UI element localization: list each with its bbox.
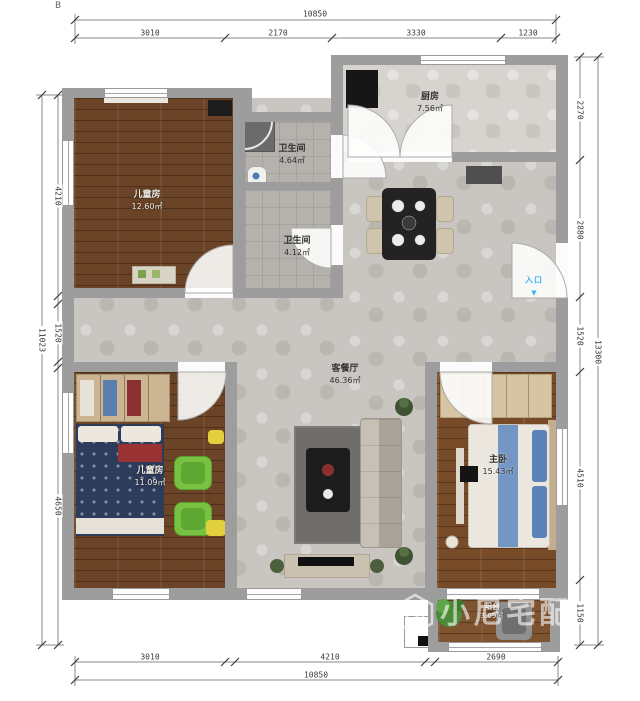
wall-kitchen-stub-right: [452, 152, 568, 162]
sideboard: [466, 166, 502, 184]
dim-right-seg-2: 1520: [576, 324, 585, 347]
bed-runner-blue: [498, 425, 518, 547]
watermark-text: 小尼宅配: [440, 599, 572, 629]
pillow-blue: [532, 486, 547, 538]
door-gap-kids-upper: [185, 288, 233, 298]
window-sill: [104, 98, 168, 103]
wall-kids-bath-divider: [233, 88, 245, 298]
room-name: 卫生间: [255, 236, 339, 248]
window-kids-upper: [104, 88, 168, 98]
room-name: 主卧: [456, 455, 540, 467]
dim-top-seg-0: 3010: [138, 29, 161, 38]
dim-bottom-seg-1: 4210: [318, 653, 341, 662]
dim-left-total: 11023: [38, 326, 47, 354]
door-gap-master: [440, 362, 492, 372]
window-master: [556, 428, 568, 506]
dim-top-seg-3: 1230: [516, 29, 539, 38]
wall-bath-divider: [240, 182, 331, 190]
wall-master-top-b: [492, 362, 568, 372]
dim-right-seg-0: 2270: [576, 98, 585, 121]
entry-label: 入口: [525, 275, 543, 286]
room-area: 15.43㎡: [456, 467, 540, 477]
dining-table: [382, 188, 436, 260]
room-area: 4.64㎡: [250, 156, 334, 166]
room-label-master: 主卧 15.43㎡: [456, 455, 540, 477]
dim-bottom-seg-2: 2690: [484, 653, 507, 662]
dim-top-seg-1: 2170: [266, 29, 289, 38]
door-gap-kitchen: [348, 152, 452, 162]
room-area: 12.60㎡: [105, 202, 189, 212]
dim-bottom-seg-0: 3010: [138, 653, 161, 662]
wall-bath-bottom: [233, 288, 343, 298]
wall-kids-lower-top: [62, 362, 178, 372]
window-kitchen: [420, 55, 506, 65]
room-name: 卫生间: [250, 144, 334, 156]
room-area: 4.12㎡: [255, 248, 339, 258]
dim-top-seg-2: 3330: [404, 29, 427, 38]
room-label-kids-lower: 儿童房 11.09㎡: [108, 466, 192, 488]
room-label-living-dining: 客餐厅 46.36㎡: [303, 364, 387, 386]
pillow: [121, 426, 161, 442]
window-left-upper: [62, 140, 74, 206]
stray-mark: B: [55, 1, 61, 11]
wall-living-master-divider: [425, 362, 437, 588]
room-label-kitchen: 厨房 7.56㎡: [388, 92, 472, 114]
room-name: 客餐厅: [303, 364, 387, 376]
wall-bath-top: [240, 112, 343, 122]
room-area: 7.56㎡: [388, 104, 472, 114]
wall-bath-right-b: [331, 178, 343, 225]
room-name: 厨房: [388, 92, 472, 104]
dim-right-total: 13300: [594, 338, 603, 366]
dim-right-seg-3: 4510: [576, 466, 585, 489]
brand-cube-logo-icon: [394, 592, 436, 636]
wardrobe-master: [440, 374, 552, 418]
room-label-kids-upper: 儿童房 12.60㎡: [105, 190, 189, 212]
wall-right-outer: [556, 55, 568, 600]
wardrobe-clothes: [80, 380, 94, 416]
wall-kids-upper-bottom: [62, 288, 185, 298]
room-area: 11.09㎡: [108, 478, 192, 488]
wardrobe-clothes: [103, 380, 117, 416]
dining-chair: [436, 196, 454, 222]
entry-arrow-icon: ▼: [531, 289, 536, 297]
dim-left-seg-1: 1520: [54, 321, 63, 344]
wall-bath-right-c: [331, 265, 343, 298]
door-gap-entry: [556, 243, 568, 298]
sofa: [360, 418, 402, 548]
floor-plan-canvas: B: [0, 0, 640, 701]
dim-left-seg-0: 4210: [54, 184, 63, 207]
room-label-bath-upper: 卫生间 4.64㎡: [250, 144, 334, 166]
plant-pot: [138, 270, 146, 278]
room-name: 儿童房: [108, 466, 192, 478]
armchair-seat: [181, 508, 205, 530]
dim-left-seg-2: 4650: [54, 494, 63, 517]
wall-kids-living-divider: [225, 362, 237, 588]
dim-right-seg-1: 2880: [576, 218, 585, 241]
window-bottom-kids: [112, 588, 170, 600]
door-gap-kids-lower: [178, 362, 225, 372]
window-left-lower: [62, 392, 74, 454]
coffee-table: [306, 448, 350, 512]
room-area: 46.36㎡: [303, 376, 387, 386]
pouf-yellow: [208, 430, 224, 444]
plant-pot: [152, 270, 160, 278]
watermark: 小尼宅配: [394, 590, 584, 638]
pillow: [78, 426, 118, 442]
dim-bottom-total: 10850: [302, 671, 330, 680]
room-name: 儿童房: [105, 190, 189, 202]
pouf-yellow: [206, 520, 226, 536]
dining-chair: [436, 228, 454, 254]
television: [298, 557, 354, 566]
window-balcony: [448, 642, 542, 652]
bed-throw: [118, 444, 162, 462]
dim-top-total: 10850: [301, 10, 329, 19]
window-bottom-living: [246, 588, 302, 600]
room-label-bath-lower: 卫生间 4.12㎡: [255, 236, 339, 258]
wardrobe-clothes: [127, 380, 141, 416]
bed-fold: [76, 518, 164, 534]
fridge: [346, 70, 378, 108]
tv-unit: [208, 100, 232, 116]
wall-bath-right-a: [331, 112, 343, 135]
